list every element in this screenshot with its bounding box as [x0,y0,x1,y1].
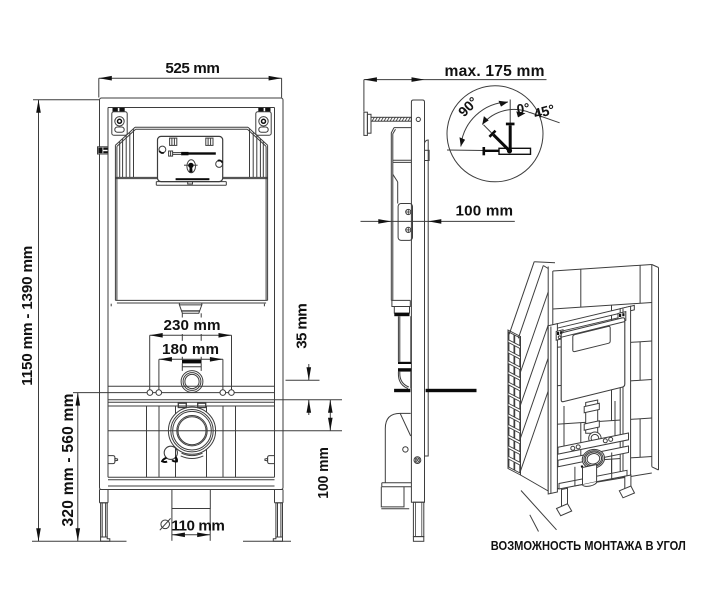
svg-text:1150 mm - 1390 mm: 1150 mm - 1390 mm [19,246,36,386]
svg-text:max. 175 mm: max. 175 mm [445,63,545,80]
svg-text:320 mm - 560 mm: 320 mm - 560 mm [60,394,77,527]
svg-text:180 mm: 180 mm [162,341,219,358]
svg-text:525 mm: 525 mm [165,60,220,77]
svg-text:100 mm: 100 mm [315,447,332,499]
svg-text:100 mm: 100 mm [456,203,514,220]
svg-text:230 mm: 230 mm [164,317,221,334]
svg-text:35 mm: 35 mm [294,303,311,349]
svg-text:ВОЗМОЖНОСТЬ МОНТАЖА В УГОЛ: ВОЗМОЖНОСТЬ МОНТАЖА В УГОЛ [491,538,686,553]
svg-text:110 mm: 110 mm [171,517,225,534]
svg-text:0°: 0° [516,100,531,117]
